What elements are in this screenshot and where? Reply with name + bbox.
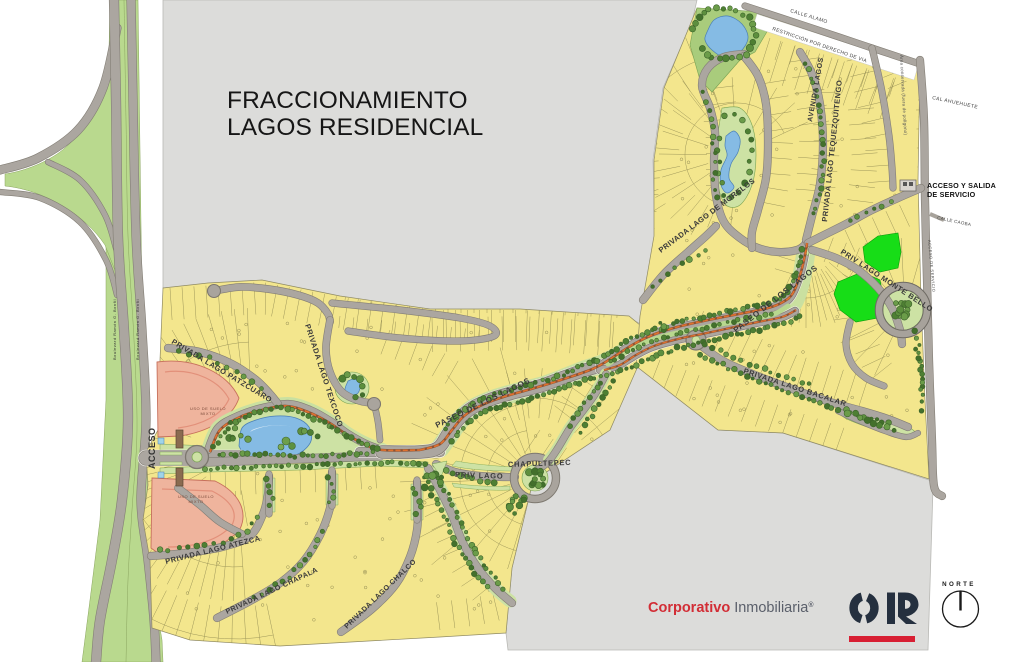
svg-text:FRACCIONAMIENTO: FRACCIONAMIENTO: [227, 87, 468, 114]
svg-text:Boulevard Ramón G. Bonfil: Boulevard Ramón G. Bonfil: [112, 299, 117, 360]
svg-text:LAGOS RESIDENCIAL: LAGOS RESIDENCIAL: [227, 114, 483, 141]
svg-text:MIXTO: MIXTO: [200, 411, 215, 416]
svg-text:MIXTO: MIXTO: [188, 499, 203, 504]
svg-text:DE SERVICIO: DE SERVICIO: [927, 190, 976, 199]
svg-text:Corporativo Inmobiliaria®: Corporativo Inmobiliaria®: [648, 600, 814, 616]
svg-text:PRIV LAGO: PRIV LAGO: [455, 470, 504, 481]
svg-text:ACCESO Y SALIDA: ACCESO Y SALIDA: [927, 181, 996, 190]
svg-text:Boulevard Ramón G. Bonfil: Boulevard Ramón G. Bonfil: [135, 299, 140, 360]
svg-text:ACCESO: ACCESO: [147, 427, 157, 469]
svg-text:NORTE: NORTE: [942, 581, 976, 588]
